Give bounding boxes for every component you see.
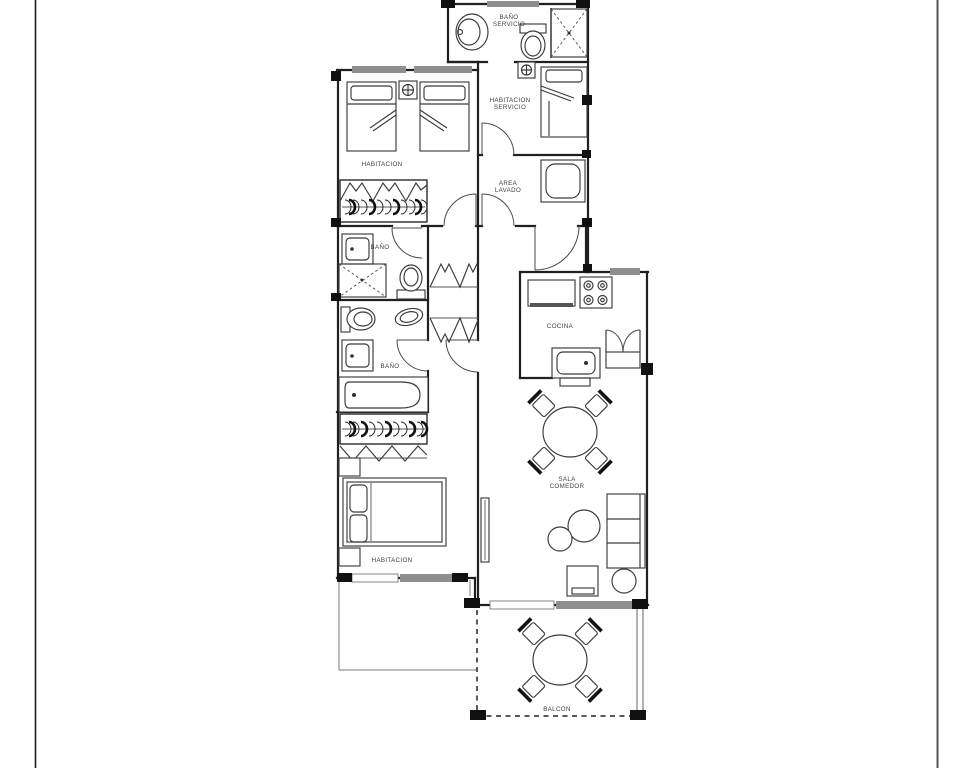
- toilet-symbol: [397, 265, 425, 299]
- window-bed2: [400, 574, 458, 582]
- bifold-door-symbol: [430, 264, 478, 287]
- washing-machine-symbol: [541, 160, 585, 202]
- toilet-symbol: [341, 307, 375, 332]
- toilet-symbol: [520, 24, 546, 59]
- closet-symbol: [340, 180, 427, 222]
- label-bano-servicio-1: BAÑO: [500, 14, 519, 21]
- room-habitacion-servicio: HABITACION SERVICIO: [490, 62, 587, 137]
- tv-stand-symbol: [567, 566, 598, 596]
- bathtub-symbol: [339, 377, 428, 412]
- room-bano-medio: BAÑO: [339, 234, 425, 299]
- stove-symbol: [580, 277, 612, 308]
- label-bano-medio: BAÑO: [371, 244, 390, 251]
- bifold-door-symbol: [430, 318, 478, 342]
- sink-symbol: [342, 234, 373, 264]
- kitchen-sink-symbol: [552, 348, 600, 386]
- counter-edge: [530, 303, 573, 307]
- counter-symbol: [528, 280, 575, 307]
- door-bedroom1: [444, 194, 476, 226]
- room-sala-comedor: SALA COMEDOR: [481, 390, 645, 596]
- sink-symbol: [456, 14, 488, 50]
- label-area-lavado-1: AREA: [499, 180, 518, 187]
- label-balcon: BALCON: [543, 706, 571, 713]
- single-bed-symbol: [541, 67, 587, 137]
- terrace-outline: [339, 580, 477, 670]
- corridor-closets: [430, 264, 478, 342]
- twin-bed-symbol-left: [347, 82, 396, 151]
- room-habitacion-principal: HABITACION: [339, 458, 446, 566]
- room-bano-servicio: BAÑO SERVICIO: [456, 9, 587, 59]
- patio-table-symbol: [533, 635, 587, 685]
- window-bed2-glass: [352, 574, 398, 582]
- nightstand-symbol: [339, 458, 360, 476]
- room-area-lavado: AREA LAVADO: [495, 160, 585, 202]
- door-bano-principal: [397, 340, 428, 371]
- nightstand-symbol: [339, 548, 360, 566]
- room-cocina: COCINA: [528, 277, 640, 386]
- label-cocina: COCINA: [547, 323, 574, 330]
- label-sala-1: SALA: [558, 476, 576, 483]
- label-sala-2: COMEDOR: [550, 483, 585, 490]
- sink-symbol: [342, 340, 373, 371]
- page-frame: [36, 0, 938, 768]
- vanity-sink-symbol: [393, 306, 424, 329]
- coffee-table-symbol: [568, 510, 600, 542]
- window-sala: [556, 601, 632, 609]
- closet-symbol-bedroom2: [340, 414, 427, 461]
- balcony-rail-right: [637, 605, 643, 714]
- side-table-symbol: [612, 569, 636, 593]
- window-bed1-a: [352, 66, 406, 73]
- window-sala-glass: [490, 601, 554, 609]
- floor-plan-drawing: BAÑO SERVICIO HABITACION SERVICIO: [0, 0, 968, 768]
- room-balcon: BALCON: [477, 605, 643, 716]
- nightstand-lamp-icon: [399, 81, 417, 99]
- label-area-lavado-2: LAVADO: [495, 187, 521, 194]
- twin-bed-symbol-right: [420, 82, 469, 151]
- double-swing-door-symbol: [606, 330, 640, 368]
- shower-symbol: [339, 264, 386, 297]
- window-bano-servicio: [487, 1, 539, 7]
- shower-symbol: [551, 9, 587, 57]
- door-area-lavado: [482, 194, 514, 226]
- sofa-symbol: [607, 494, 645, 568]
- label-habitacion-servicio-2: SERVICIO: [494, 104, 526, 111]
- window-bed1-b: [414, 66, 472, 73]
- label-bano-principal: BAÑO: [381, 363, 400, 370]
- window-cocina: [610, 268, 640, 275]
- dining-table-symbol: [543, 407, 597, 457]
- coffee-table-symbol-small: [548, 527, 572, 551]
- room-bano-principal: BAÑO: [339, 306, 428, 412]
- label-habitacion-principal: HABITACION: [372, 557, 413, 564]
- door-entry: [535, 226, 579, 270]
- room-habitacion-top: HABITACION: [340, 81, 469, 222]
- door-habitacion-servicio: [482, 123, 514, 155]
- console-symbol: [481, 498, 489, 562]
- double-bed-symbol: [343, 478, 446, 546]
- door-bano-medio: [392, 228, 422, 258]
- label-bano-servicio-2: SERVICIO: [493, 21, 525, 28]
- floor-plan-page: BAÑO SERVICIO HABITACION SERVICIO: [0, 0, 968, 768]
- door-corridor-sala: [446, 340, 478, 372]
- label-habitacion-top: HABITACION: [362, 161, 403, 168]
- label-habitacion-servicio-1: HABITACION: [490, 97, 531, 104]
- nightstand-lamp-icon: [518, 62, 535, 78]
